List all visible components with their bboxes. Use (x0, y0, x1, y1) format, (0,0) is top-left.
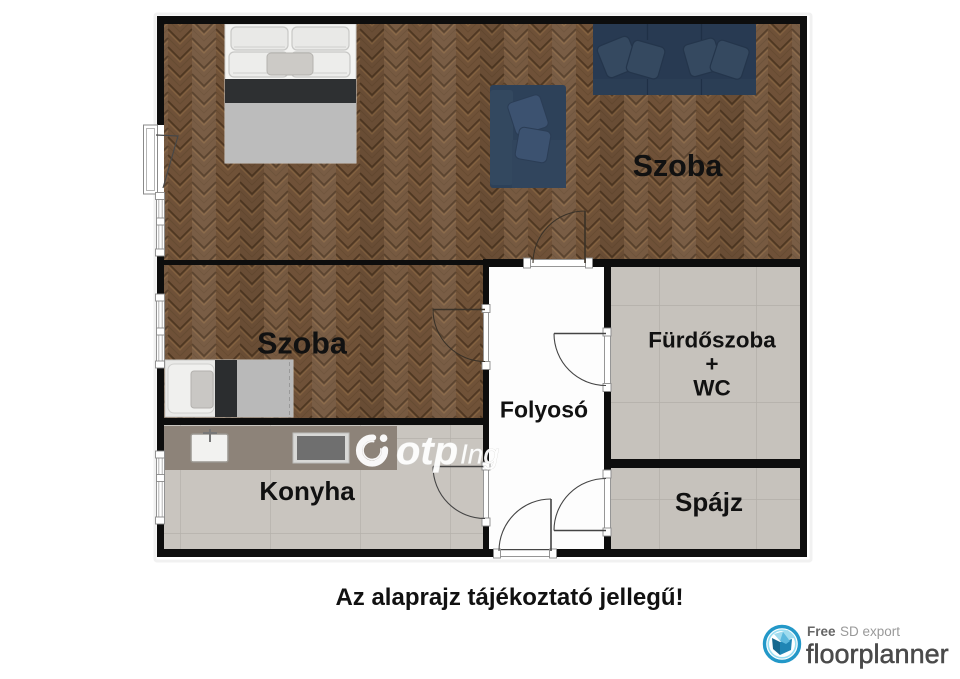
svg-text:Folyosó: Folyosó (500, 397, 588, 423)
svg-text:Spájz: Spájz (675, 487, 743, 517)
svg-text:Konyha: Konyha (259, 476, 355, 506)
svg-text:Fürdőszoba: Fürdőszoba (648, 328, 776, 353)
svg-text:otp: otp (396, 429, 458, 473)
svg-text:SD export: SD export (840, 624, 900, 639)
svg-text:Free: Free (807, 624, 836, 639)
svg-text:WC: WC (693, 376, 731, 401)
svg-text:Az alaprajz tájékoztató jelleg: Az alaprajz tájékoztató jellegű! (335, 584, 683, 611)
svg-text:Szoba: Szoba (257, 327, 348, 361)
svg-text:Szoba: Szoba (633, 149, 724, 183)
svg-text:floorplanner: floorplanner (806, 639, 949, 669)
svg-text:+: + (705, 352, 718, 377)
svg-text:Ing: Ing (460, 439, 499, 470)
